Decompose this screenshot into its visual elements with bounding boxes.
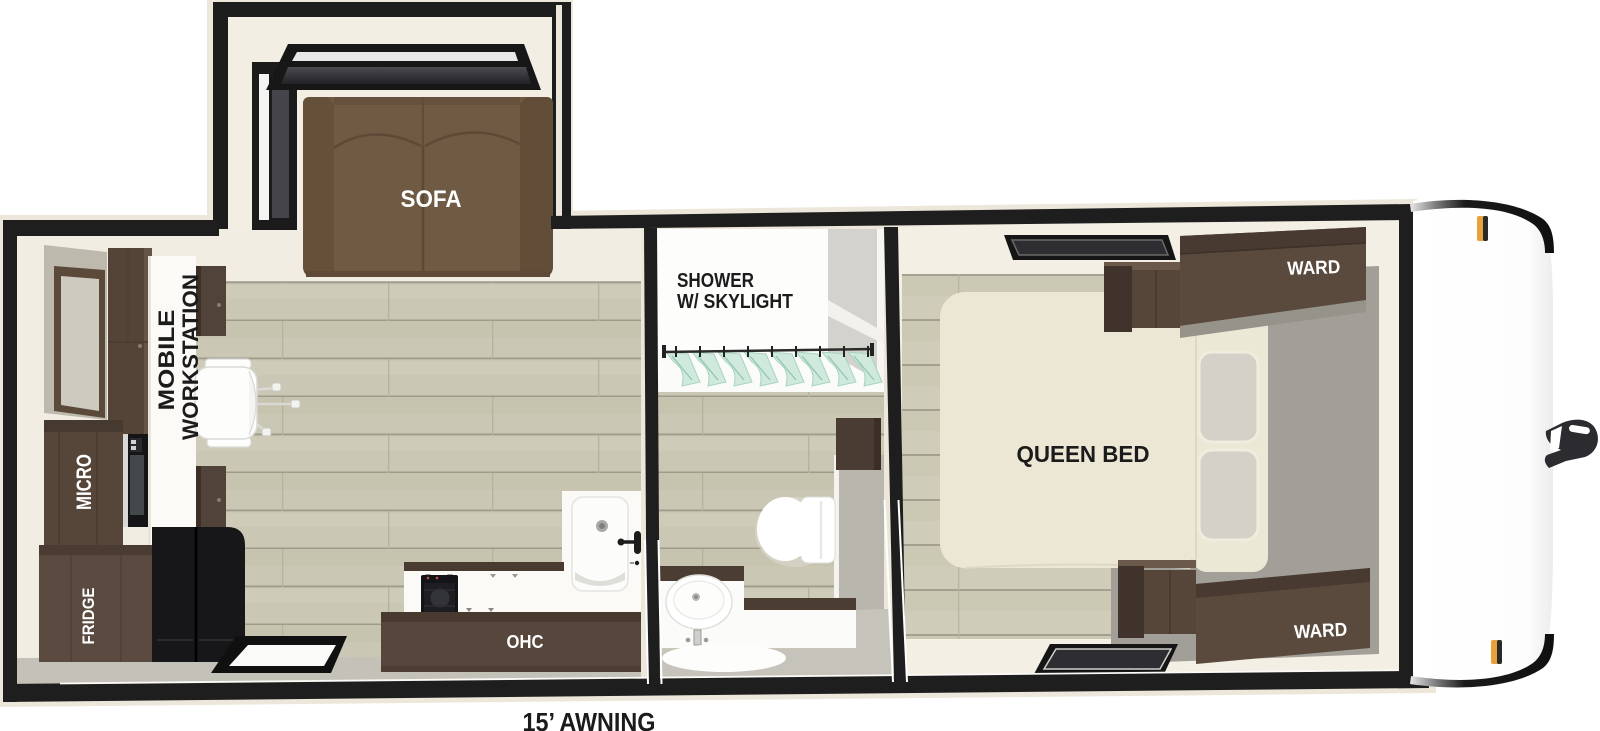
svg-text:WORKSTATION: WORKSTATION [178, 274, 203, 440]
svg-text:WARD: WARD [1287, 257, 1341, 280]
svg-text:SHOWER: SHOWER [677, 270, 754, 292]
svg-text:MICRO: MICRO [73, 454, 96, 510]
svg-text:FRIDGE: FRIDGE [79, 588, 98, 645]
svg-text:15’ AWNING: 15’ AWNING [523, 707, 656, 731]
svg-text:QUEEN BED: QUEEN BED [1017, 441, 1150, 467]
svg-text:OHC: OHC [507, 632, 544, 652]
svg-text:MOBILE: MOBILE [154, 310, 179, 411]
svg-text:WARD: WARD [1294, 620, 1348, 644]
svg-text:SOFA: SOFA [401, 186, 462, 213]
svg-text:W/ SKYLIGHT: W/ SKYLIGHT [677, 291, 793, 313]
